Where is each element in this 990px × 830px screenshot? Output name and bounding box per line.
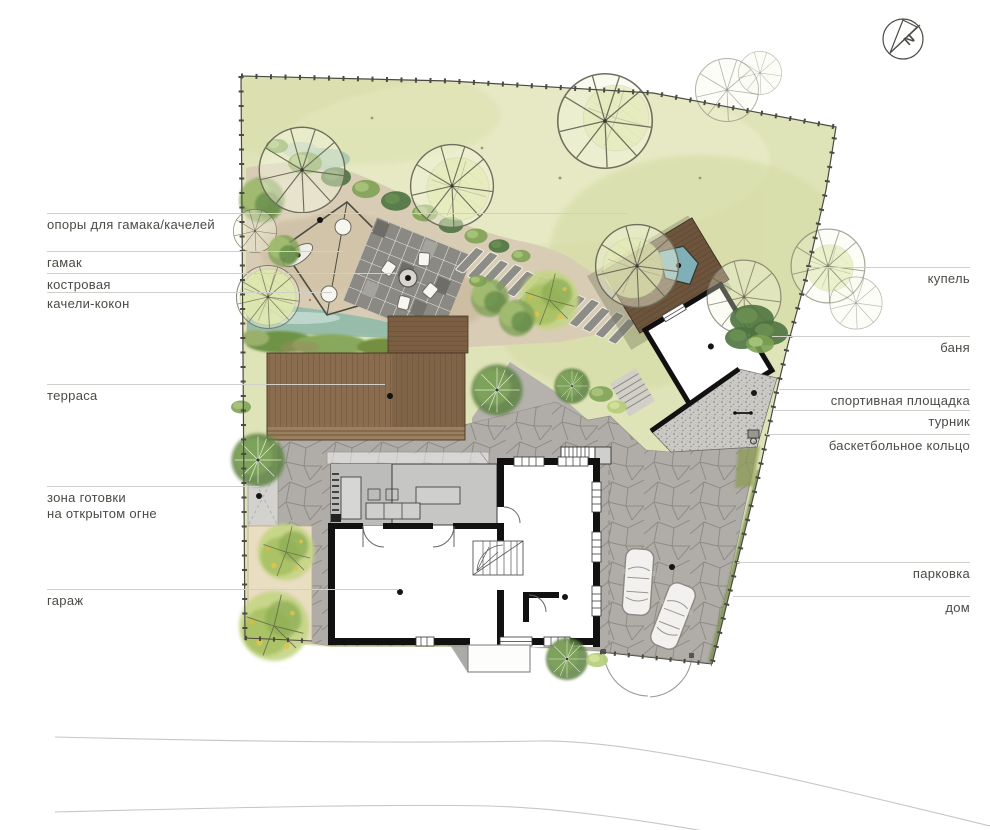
stairs	[473, 541, 523, 575]
label-sauna: баня	[940, 340, 970, 356]
label-hammock-supports: опоры для гамака/качелей	[47, 217, 215, 233]
label-pullup-bar: турник	[928, 414, 970, 430]
tree	[830, 277, 882, 329]
tree	[472, 365, 523, 416]
terrace-marker	[387, 393, 393, 399]
label-garage: гараж	[47, 593, 83, 609]
tree	[239, 591, 309, 661]
road-contour-lines	[55, 737, 990, 830]
upper-deck-steps	[388, 316, 468, 353]
site-plan-drawing: N	[0, 0, 990, 830]
leader-line	[774, 410, 970, 411]
label-cocoon-swing: качели-кокон	[47, 296, 130, 312]
summer-kitchen	[331, 464, 497, 525]
leader-line	[806, 267, 970, 268]
room-marker	[562, 594, 568, 600]
north-arrow-icon: N	[883, 19, 923, 59]
label-parking: парковка	[913, 566, 970, 582]
shrub	[464, 228, 487, 243]
label-cooking-zone: зона готовки на открытом огне	[47, 490, 157, 522]
leader-line	[47, 213, 628, 214]
tree	[237, 266, 300, 329]
tree	[258, 524, 315, 581]
shrub	[489, 239, 510, 253]
label-basketball-hoop: баскетбольное кольцо	[829, 438, 970, 454]
site-plan: N опоры для гамака/качелей гамак костров…	[0, 0, 990, 830]
label-line-1: зона готовки	[47, 490, 126, 505]
tree	[554, 368, 589, 403]
shrub	[746, 335, 774, 353]
shrub	[511, 250, 530, 262]
shrub	[381, 191, 411, 211]
grill	[332, 474, 339, 510]
leader-line	[772, 336, 970, 337]
leader-line	[47, 384, 385, 385]
tree	[738, 51, 781, 94]
label-terrace: терраса	[47, 388, 98, 404]
label-line-2: на открытом огне	[47, 506, 157, 521]
leader-line	[47, 589, 399, 590]
north-letter: N	[901, 31, 918, 48]
label-sports-ground: спортивная площадка	[831, 393, 970, 409]
leader-line	[779, 389, 970, 390]
tree	[411, 145, 494, 228]
label-house: дом	[945, 600, 970, 616]
hammock-post	[317, 217, 323, 223]
roof-overhang	[327, 452, 489, 464]
shrub	[469, 275, 487, 287]
shrub	[607, 401, 627, 414]
terrace-deck	[267, 353, 465, 440]
shrub	[231, 401, 251, 414]
leader-line	[766, 434, 970, 435]
tree	[499, 300, 535, 336]
leader-line	[47, 273, 397, 274]
tree	[231, 433, 284, 486]
porch	[450, 645, 530, 673]
parking-marker	[669, 564, 675, 570]
tree	[596, 225, 679, 308]
leader-line	[737, 562, 970, 563]
leader-line	[733, 596, 970, 597]
label-fire-pit: костровая	[47, 277, 111, 293]
shrub	[589, 386, 613, 402]
leader-line	[47, 251, 343, 252]
label-hammock: гамак	[47, 255, 82, 271]
shrub	[586, 653, 608, 667]
leader-line	[47, 486, 259, 487]
sports-marker	[751, 390, 757, 396]
tree	[546, 638, 588, 680]
tree	[259, 127, 345, 213]
swing-seat	[335, 219, 351, 235]
cocoon-swing	[321, 286, 337, 302]
shrub	[352, 180, 380, 198]
label-plunge-pool: купель	[928, 271, 970, 287]
